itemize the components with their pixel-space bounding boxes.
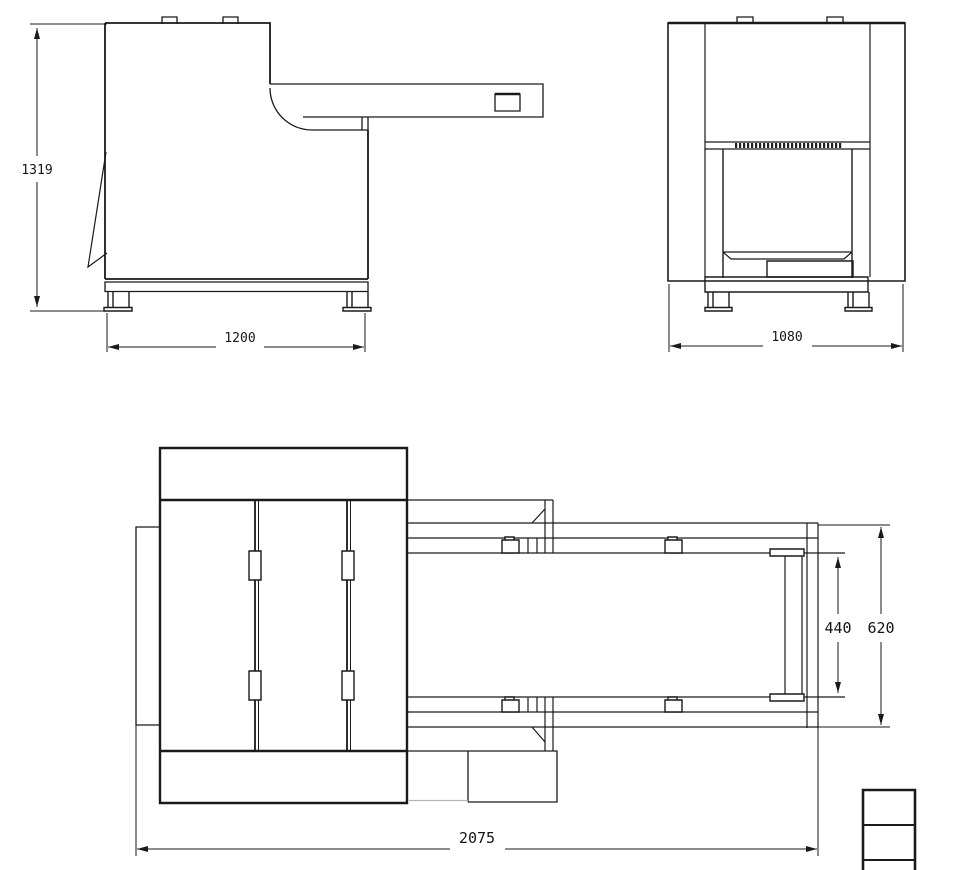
dim-value-conveyor-width: 620	[867, 619, 894, 637]
front-foot-pads	[705, 308, 872, 312]
dimension-belt-width: 440	[824, 557, 851, 693]
conveyor-end-plates	[770, 549, 804, 701]
dim-value-side-height: 1319	[21, 163, 52, 178]
conveyor-upper-plate	[407, 500, 553, 553]
title-block-border	[863, 790, 915, 870]
top-view: 440 620 2075	[136, 448, 895, 856]
conveyor-lower-plate	[528, 697, 553, 751]
side-feet	[108, 292, 368, 308]
top-cabinet-outline	[160, 448, 407, 803]
dim-value-front-width: 1080	[771, 330, 802, 345]
dimension-side-height: 1319	[21, 24, 130, 311]
front-feet	[708, 292, 869, 308]
dimension-front-width: 1080	[669, 284, 903, 352]
dim-value-belt-width: 440	[824, 619, 851, 637]
top-bottom-strip	[407, 751, 557, 802]
dim-value-side-width: 1200	[224, 331, 255, 346]
drawing-canvas: 1319 1200 1080	[0, 0, 980, 870]
side-view: 1319 1200	[21, 17, 543, 352]
front-inner-panels	[705, 24, 870, 277]
side-arm-panel	[495, 94, 520, 111]
dimension-overall-length: 2075	[136, 725, 818, 856]
front-step-box	[767, 261, 853, 277]
conveyor-rail-clips	[502, 537, 682, 712]
front-belt-line	[723, 252, 852, 259]
dim-value-overall-length: 2075	[459, 829, 495, 847]
technical-drawing: 1319 1200 1080	[0, 0, 980, 870]
side-base-rail	[105, 282, 368, 292]
top-door-hinges	[249, 551, 354, 700]
side-arm-outline	[270, 84, 543, 130]
top-left-protrusion	[136, 527, 160, 725]
side-body-outline	[105, 23, 368, 279]
title-block-red-rules	[864, 825, 914, 860]
top-conveyor	[407, 500, 845, 751]
side-foot-pads	[104, 308, 371, 312]
top-door-gap-companions	[259, 500, 351, 751]
dimension-side-width: 1200	[107, 313, 365, 352]
top-door-gaps	[255, 500, 347, 751]
front-base-bar	[705, 277, 868, 292]
title-block-fragment	[863, 790, 915, 870]
front-view: 1080	[668, 17, 905, 352]
